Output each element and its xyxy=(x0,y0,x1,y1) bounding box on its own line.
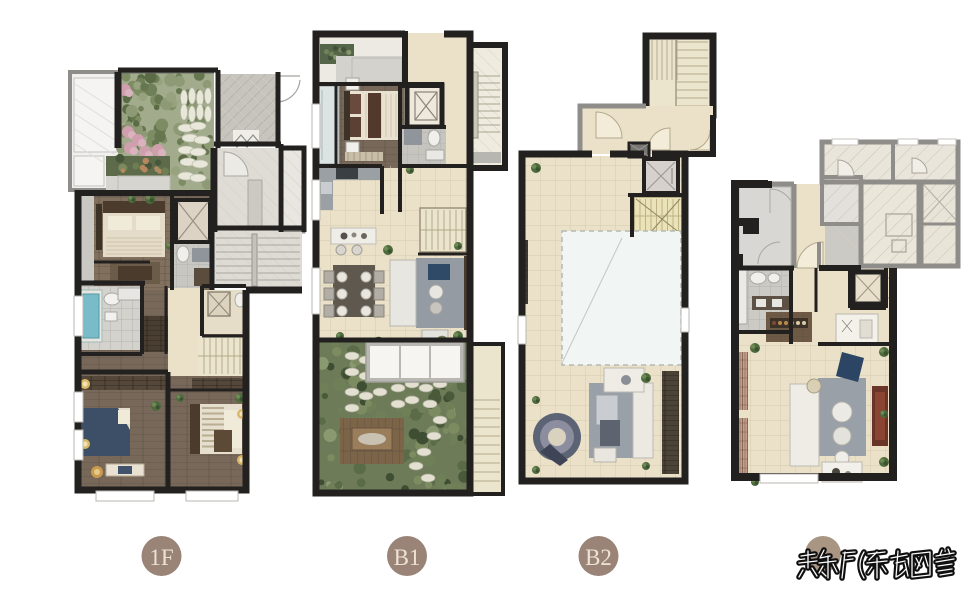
svg-text:B2: B2 xyxy=(585,545,612,570)
svg-text:1F: 1F xyxy=(149,545,173,570)
svg-text:B1: B1 xyxy=(394,545,421,570)
